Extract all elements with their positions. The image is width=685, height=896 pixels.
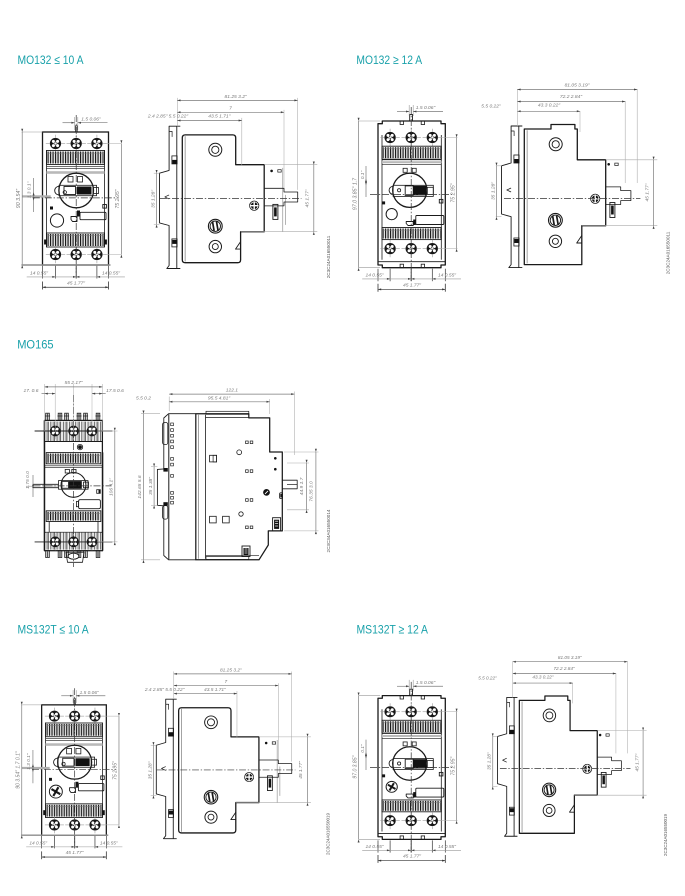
svg-text:5.5 0.2: 5.5 0.2 (136, 396, 151, 402)
svg-text:7: 7 (225, 679, 228, 685)
svg-text:2C3C24A016550019: 2C3C24A016550019 (663, 813, 668, 855)
svg-text:43.5 1.71": 43.5 1.71" (204, 687, 226, 693)
svg-text:75 2.95": 75 2.95" (450, 182, 456, 202)
svg-text:2C3C24A016550019: 2C3C24A016550019 (326, 813, 331, 856)
svg-text:14 0.55": 14 0.55" (100, 840, 118, 846)
svg-text:90 3.54" 1.7 0.1": 90 3.54" 1.7 0.1" (16, 751, 22, 789)
svg-text:MS132T ≤ 10 A: MS132T ≤ 10 A (18, 623, 90, 637)
svg-text:5.5 0.22": 5.5 0.22" (481, 104, 501, 110)
svg-text:2C3C24A016550011: 2C3C24A016550011 (326, 235, 331, 278)
svg-text:122.1: 122.1 (226, 388, 239, 394)
svg-text:2C3C34A016550014: 2C3C34A016550014 (326, 509, 331, 552)
svg-text:97.0 3.85" 1.7: 97.0 3.85" 1.7 (352, 177, 358, 210)
svg-text:0.1": 0.1" (360, 744, 366, 753)
svg-text:1.5 0.06": 1.5 0.06" (416, 105, 436, 111)
svg-text:45 1.77": 45 1.77" (645, 183, 651, 201)
svg-text:97.0 3.85": 97.0 3.85" (352, 754, 358, 778)
svg-text:14 0.55": 14 0.55" (365, 272, 383, 278)
svg-text:2.4 2.85" 5.5 0.22": 2.4 2.85" 5.5 0.22" (144, 687, 185, 693)
svg-text:45 1.77": 45 1.77" (304, 189, 310, 207)
svg-text:0.1": 0.1" (360, 170, 366, 179)
svg-text:MS132T ≥ 12 A: MS132T ≥ 12 A (357, 623, 429, 637)
svg-text:72.2 2.84": 72.2 2.84" (560, 94, 582, 100)
svg-text:90 3.54": 90 3.54" (16, 188, 22, 208)
svg-text:35 1.28": 35 1.28" (490, 182, 496, 200)
svg-text:5.5 0.22": 5.5 0.22" (478, 675, 497, 681)
svg-text:45 1.77": 45 1.77" (66, 850, 84, 856)
svg-text:14 0.55": 14 0.55" (365, 844, 383, 850)
svg-text:81.25 3.2": 81.25 3.2" (225, 94, 247, 100)
svg-text:14 0.55": 14 0.55" (438, 844, 456, 850)
svg-text:95.5 4.81": 95.5 4.81" (208, 396, 230, 402)
svg-text:7: 7 (229, 106, 232, 112)
svg-text:35 1.28": 35 1.28" (487, 752, 493, 770)
svg-text:45 1.77": 45 1.77" (403, 282, 421, 288)
svg-text:45 1.77": 45 1.77" (298, 761, 304, 779)
svg-text:55 2.17": 55 2.17" (64, 380, 82, 386)
svg-text:45 1.77": 45 1.77" (67, 280, 85, 286)
svg-text:1.5 0.06": 1.5 0.06" (416, 680, 436, 686)
svg-text:43.3 0.22": 43.3 0.22" (538, 103, 560, 109)
svg-text:MO132 ≥ 12 A: MO132 ≥ 12 A (356, 53, 422, 67)
svg-text:1.3 0.1": 1.3 0.1" (26, 753, 32, 770)
svg-text:1.5 0.06": 1.5 0.06" (80, 690, 99, 696)
svg-text:142.65 5.6: 142.65 5.6 (137, 475, 143, 498)
svg-text:75 2.95": 75 2.95" (115, 188, 121, 208)
svg-text:14 0.55": 14 0.55" (438, 272, 456, 278)
svg-text:2.4 2.85" 5.5 0.22": 2.4 2.85" 5.5 0.22" (147, 114, 188, 120)
svg-text:17.5 0.6: 17.5 0.6 (106, 388, 124, 394)
svg-text:106 4.1": 106 4.1" (108, 478, 114, 496)
svg-text:72.2 2.84": 72.2 2.84" (553, 666, 574, 672)
svg-text:45 1.77": 45 1.77" (403, 854, 421, 860)
svg-text:1.3 0.1": 1.3 0.1" (27, 181, 33, 198)
svg-text:43.3 0.22": 43.3 0.22" (532, 674, 553, 680)
svg-text:45 1.77": 45 1.77" (634, 753, 640, 771)
svg-text:17. 0.6: 17. 0.6 (24, 388, 39, 394)
svg-text:44.9 1.7: 44.9 1.7 (299, 477, 305, 495)
svg-text:14 0.55": 14 0.55" (102, 270, 120, 276)
svg-text:14 0.55": 14 0.55" (29, 840, 47, 846)
svg-text:75 2.95": 75 2.95" (113, 761, 119, 780)
svg-text:MO132 ≤ 10 A: MO132 ≤ 10 A (18, 53, 85, 67)
svg-text:MO165: MO165 (17, 338, 54, 352)
svg-text:2C3C24A016550011: 2C3C24A016550011 (666, 231, 671, 274)
svg-text:81.05 3.19": 81.05 3.19" (565, 83, 590, 89)
svg-text:75 2.95": 75 2.95" (450, 756, 456, 776)
svg-text:14 0.55": 14 0.55" (30, 270, 48, 276)
svg-text:43.5 1.71": 43.5 1.71" (208, 114, 230, 120)
svg-text:76.35 3.0: 76.35 3.0 (309, 481, 315, 502)
svg-text:81.05 3.19": 81.05 3.19" (558, 655, 582, 661)
svg-text:35 1.28": 35 1.28" (147, 761, 153, 779)
svg-text:1.5 0.06": 1.5 0.06" (81, 117, 101, 123)
svg-text:81.25 3.2": 81.25 3.2" (220, 667, 242, 673)
svg-text:35 1.28": 35 1.28" (150, 190, 156, 208)
svg-text:35 1.38": 35 1.38" (148, 477, 154, 495)
